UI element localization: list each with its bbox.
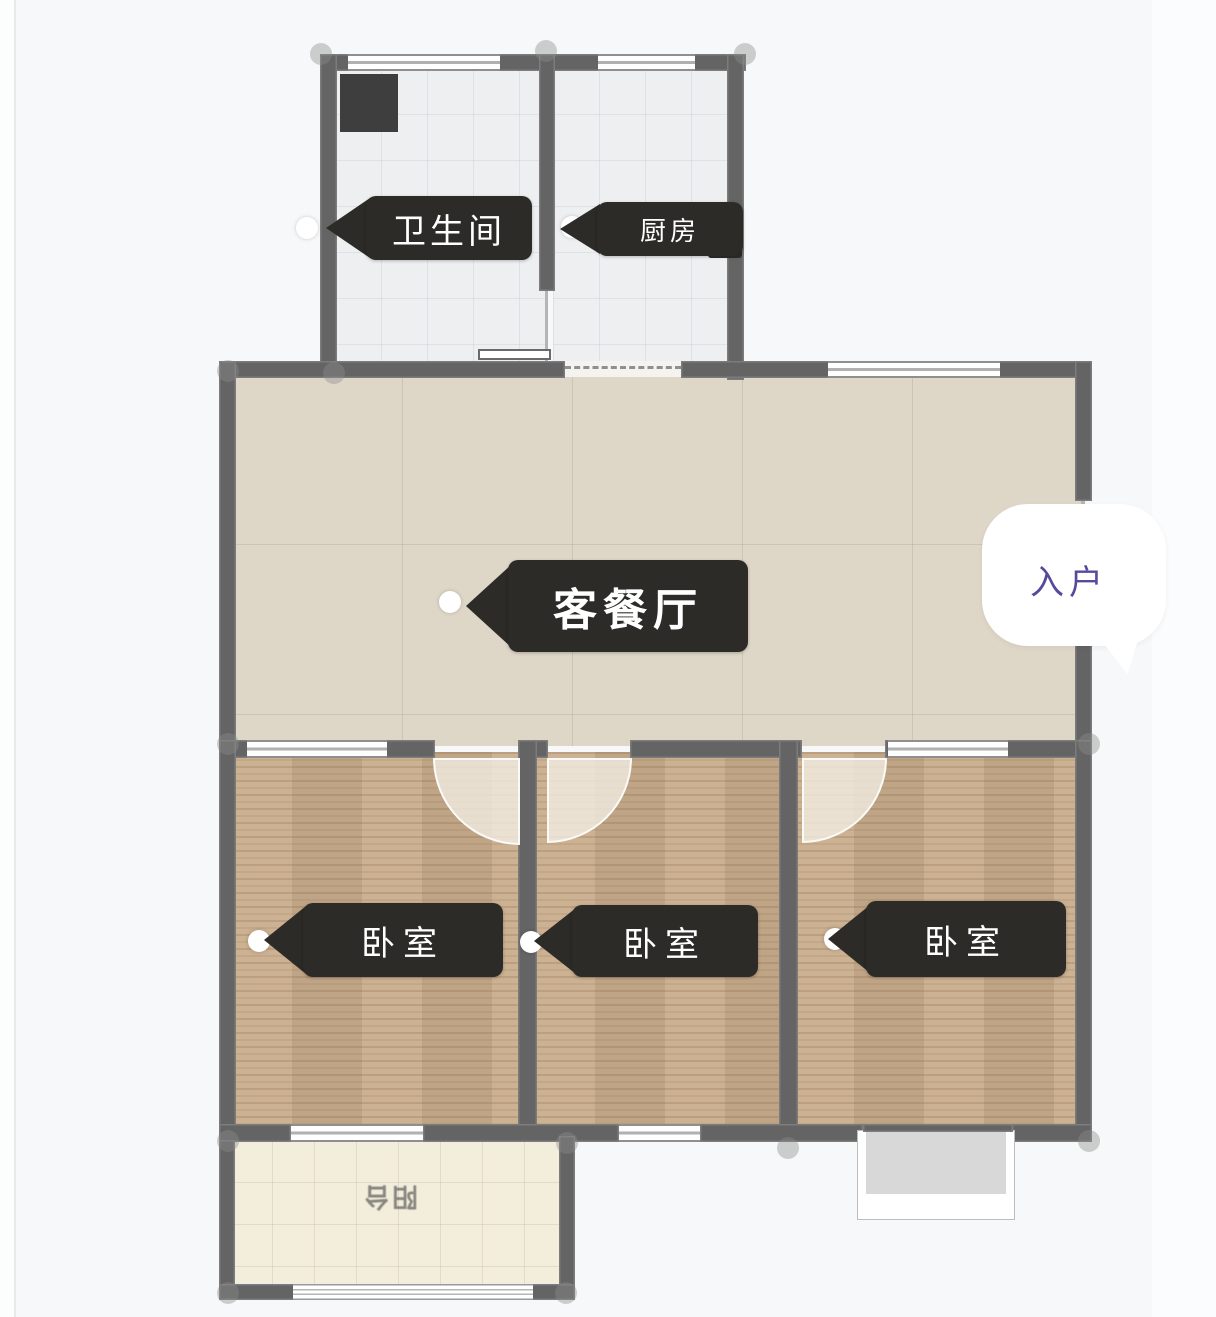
- wall-joint: [734, 43, 756, 65]
- page-right-edge: [1152, 0, 1216, 1317]
- page-left-edge: [0, 0, 16, 1317]
- wall-joint: [535, 40, 557, 62]
- room-label-living-dining[interactable]: 客餐厅: [508, 560, 748, 652]
- entrance-bubble-tail-icon: [1093, 630, 1141, 674]
- wall-joint: [310, 43, 332, 65]
- wall-joint: [555, 1282, 577, 1304]
- living-north-window: [828, 361, 1000, 378]
- bathroom-fixture-dark-square: [340, 74, 398, 132]
- wall-joint: [323, 362, 345, 384]
- bedroom-3-interior-window: [888, 740, 1008, 758]
- wall-joint: [217, 733, 239, 755]
- bedroom-2-window: [619, 1124, 700, 1142]
- room-label-bedroom-3[interactable]: 卧室: [866, 901, 1066, 977]
- bedroom-3-bay-window: [866, 1130, 1006, 1194]
- wall-living-north-a: [219, 361, 565, 378]
- bedroom-3-bay-window-sill: [863, 1124, 1013, 1132]
- wall-bedroom-1-west: [219, 740, 236, 1140]
- wall-bedrooms-south-b: [423, 1124, 619, 1142]
- wall-joint: [1078, 1130, 1100, 1152]
- wall-joint: [217, 1282, 239, 1304]
- balcony-faint-label: 阳台: [340, 1180, 440, 1217]
- wall-bedroom-3-east: [1075, 740, 1092, 1140]
- room-marker-dot-bathroom: [296, 217, 318, 239]
- room-label-bathroom[interactable]: 卫生间: [366, 196, 532, 260]
- bedroom-1-balcony-slider: [291, 1124, 423, 1142]
- wall-living-east-upper: [1075, 361, 1092, 501]
- room-marker-dot-living: [439, 591, 461, 613]
- room-label-bedroom-1[interactable]: 卧室: [303, 903, 503, 977]
- entrance-label: 入户: [1030, 555, 1108, 604]
- wall-bedrooms-north-b: [630, 740, 802, 758]
- wall-joint: [1078, 733, 1100, 755]
- floorplan-page: { "floorplan": { "title": "户型图", "rooms"…: [0, 0, 1216, 1317]
- wall-joint: [777, 1137, 799, 1159]
- bedroom-1-interior-window: [247, 740, 387, 758]
- bathroom-sliding-door: [478, 349, 551, 360]
- kitchen-passage-opening: [565, 361, 681, 377]
- wall-bathroom-kitchen-divider: [539, 54, 555, 291]
- kitchen-window: [598, 54, 695, 71]
- wall-joint: [217, 360, 239, 382]
- wall-bedroom-2-3-divider: [779, 740, 798, 1142]
- room-label-bedroom-2[interactable]: 卧室: [572, 905, 758, 977]
- balcony-railing-window: [293, 1284, 533, 1300]
- wall-living-west: [219, 361, 236, 758]
- wall-joint: [556, 1132, 578, 1154]
- bathroom-window: [348, 54, 500, 71]
- wall-joint: [217, 1130, 239, 1152]
- wall-balcony-west: [219, 1140, 235, 1300]
- wall-bathroom-west: [320, 54, 337, 378]
- room-label-kitchen[interactable]: 厨房: [597, 202, 743, 256]
- wall-balcony-east: [559, 1136, 575, 1300]
